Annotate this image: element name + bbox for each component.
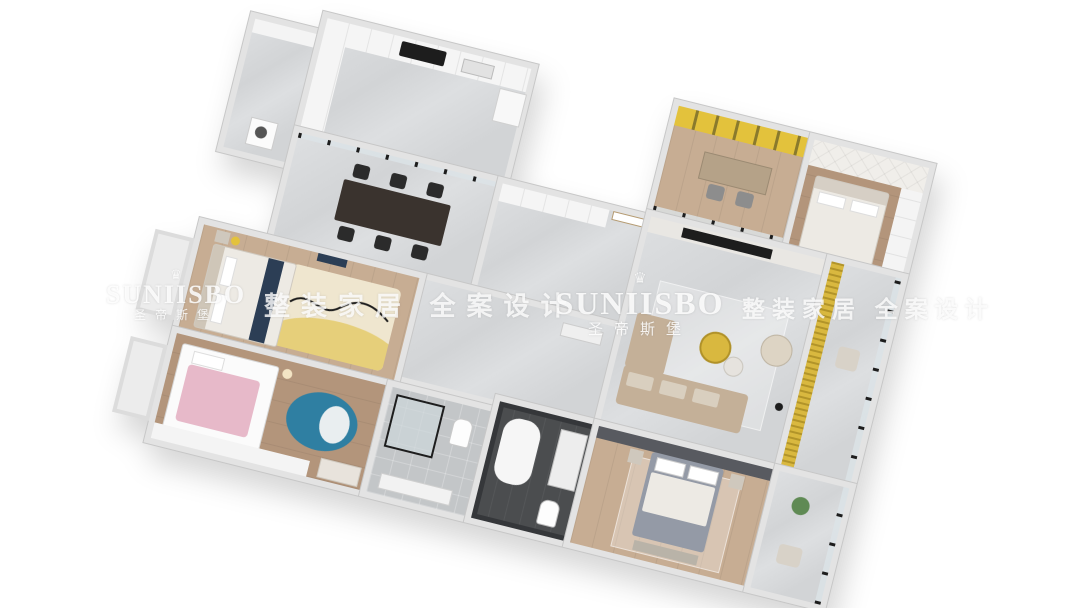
brand-name-cn: 圣帝斯堡 bbox=[550, 321, 730, 341]
balcony-chair bbox=[775, 543, 803, 568]
crown-icon: ♛ bbox=[96, 268, 256, 281]
rug-pattern bbox=[315, 403, 353, 447]
watermark-logo-left: ♛ SUNIISBO 圣帝斯堡 bbox=[96, 268, 256, 324]
sofa-cushion bbox=[659, 380, 688, 400]
watermark-tagline-right: 整装家居 全案设计 bbox=[742, 290, 995, 324]
toilet bbox=[536, 498, 562, 528]
entry-door bbox=[611, 211, 648, 228]
lounge-chair bbox=[834, 346, 861, 373]
brand-name: SUNIISBO bbox=[96, 281, 256, 308]
sofa-cushion bbox=[692, 388, 721, 408]
dining-chair bbox=[336, 225, 355, 242]
shower bbox=[384, 394, 446, 458]
dining-chair bbox=[389, 172, 408, 189]
desk-chair bbox=[734, 191, 754, 210]
washer-door bbox=[254, 125, 269, 140]
table-lamp bbox=[230, 236, 241, 247]
bathtub bbox=[491, 415, 544, 488]
plush-toy bbox=[281, 368, 293, 380]
balcony-window bbox=[814, 487, 849, 605]
dining-chair bbox=[426, 182, 445, 199]
laundry-shelf bbox=[252, 19, 323, 50]
fridge bbox=[492, 88, 527, 128]
pink-blanket bbox=[175, 364, 261, 438]
desk-chair bbox=[705, 183, 725, 202]
dining-chair bbox=[352, 163, 371, 180]
crown-icon: ♛ bbox=[550, 272, 730, 287]
watermark-tagline-left: 整装家居 全案设计 bbox=[264, 286, 578, 323]
dining-chair bbox=[373, 234, 392, 251]
kids-desk bbox=[316, 458, 362, 488]
vanity bbox=[377, 473, 453, 506]
bay-ledge bbox=[117, 341, 163, 416]
brand-name-cn: 圣帝斯堡 bbox=[96, 308, 256, 324]
floor-lamp bbox=[774, 402, 784, 412]
entry-cabinet bbox=[498, 183, 609, 227]
sofa-cushion bbox=[626, 372, 655, 392]
play-rug bbox=[280, 385, 364, 459]
toilet bbox=[448, 417, 474, 449]
nightstand bbox=[214, 230, 230, 245]
washing-machine bbox=[245, 117, 279, 151]
brand-name: SUNIISBO bbox=[550, 287, 730, 321]
floorplan-render: ♛ SUNIISBO 圣帝斯堡 整装家居 全案设计 ♛ SUNIISBO 圣帝斯… bbox=[0, 0, 1080, 608]
bath-vanity bbox=[547, 429, 588, 492]
watermark-logo-center: ♛ SUNIISBO 圣帝斯堡 bbox=[550, 272, 730, 340]
potted-plant bbox=[790, 495, 812, 517]
nightstand bbox=[728, 473, 745, 490]
bookshelf-yellow bbox=[674, 106, 815, 159]
dining-chair bbox=[410, 244, 429, 261]
